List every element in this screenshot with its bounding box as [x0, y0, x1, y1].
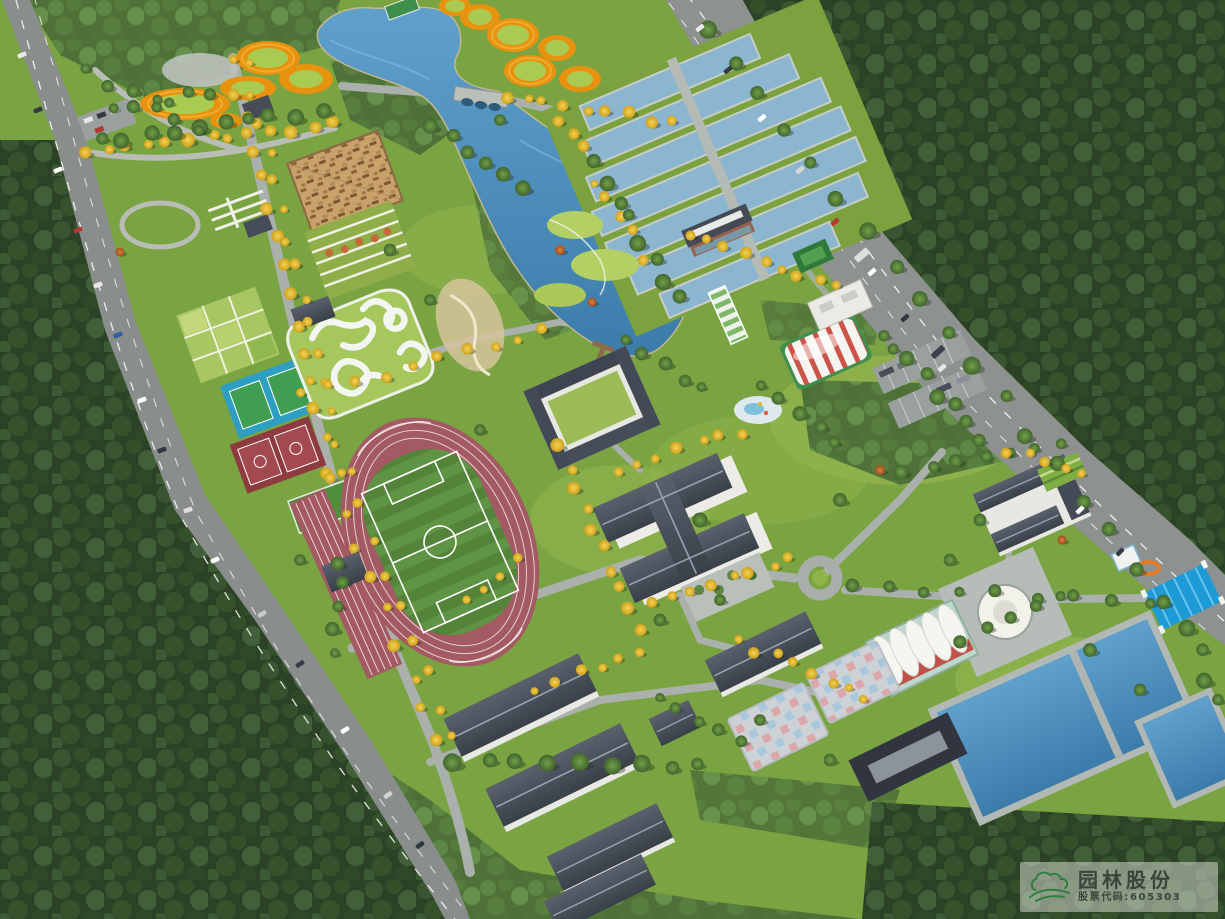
- aerial-rendering: 园林股份 股票代码:605303: [0, 0, 1225, 919]
- company-watermark: 园林股份 股票代码:605303: [1020, 862, 1218, 912]
- stock-code: 股票代码:605303: [1078, 893, 1181, 904]
- roundabout: [803, 561, 837, 595]
- cloud-hill-logo-icon: [1026, 868, 1072, 906]
- company-name: 园林股份: [1078, 870, 1181, 891]
- site-rendering: [0, 0, 1225, 919]
- watermark-text: 园林股份 股票代码:605303: [1078, 870, 1181, 904]
